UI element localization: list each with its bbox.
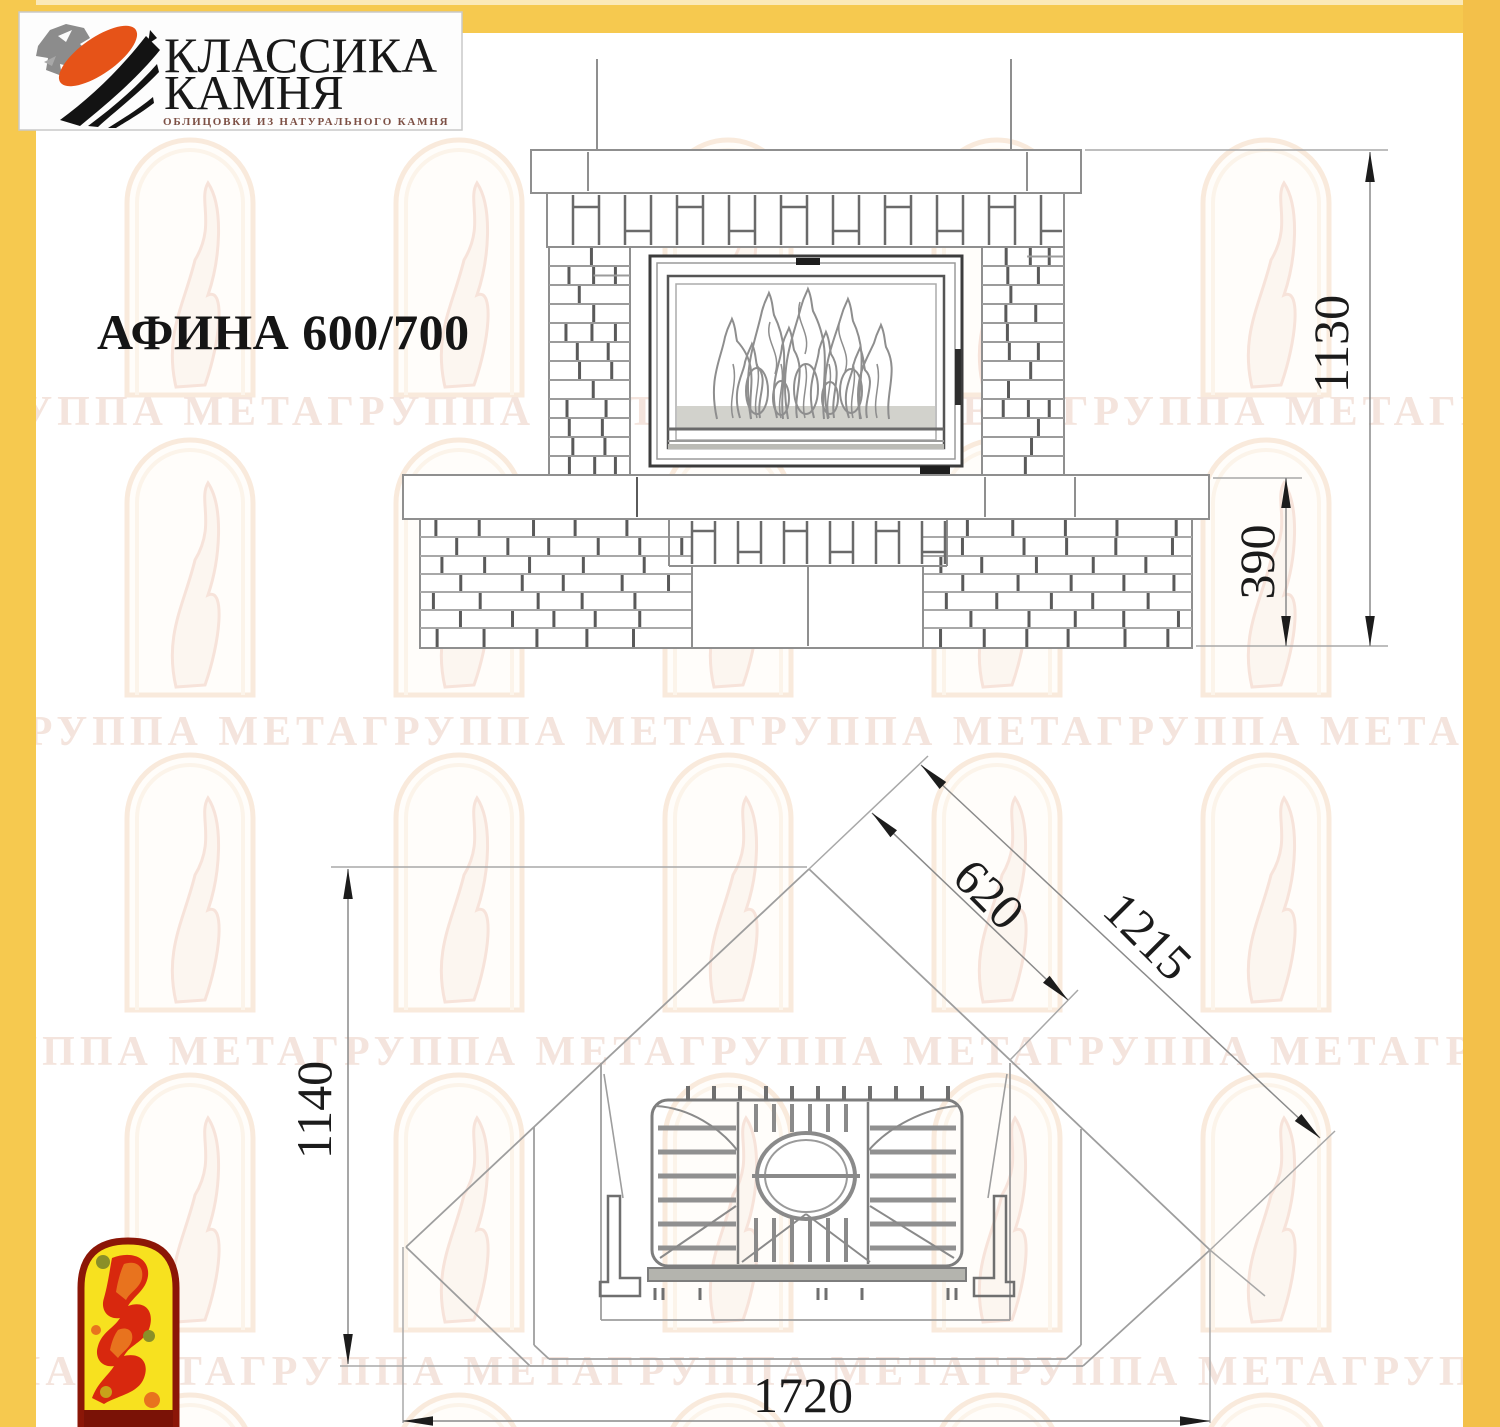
svg-text:КАМНЯ: КАМНЯ [164, 65, 344, 120]
svg-text:ГРУППА МЕТАГРУППА МЕТАГРУППА М: ГРУППА МЕТАГРУППА МЕТАГРУППА МЕТАГРУППА … [0, 709, 1500, 755]
svg-text:390: 390 [1229, 525, 1285, 600]
svg-text:1130: 1130 [1303, 295, 1359, 393]
svg-text:1720: 1720 [753, 1367, 853, 1423]
svg-text:ГРУППА МЕТАГРУППА МЕТАГРУППА М: ГРУППА МЕТАГРУППА МЕТАГРУППА МЕТАГРУППА … [0, 1029, 1500, 1075]
svg-text:1140: 1140 [286, 1061, 342, 1159]
svg-text:ОБЛИЦОВКИ ИЗ НАТУРАЛЬНОГО КАМН: ОБЛИЦОВКИ ИЗ НАТУРАЛЬНОГО КАМНЯ [163, 116, 449, 128]
svg-text:ППА МЕТАГРУППА МЕТАГРУППА МЕТА: ППА МЕТАГРУППА МЕТАГРУППА МЕТАГРУППА МЕТ… [0, 1349, 1500, 1395]
svg-text:АФИНА 600/700: АФИНА 600/700 [97, 304, 470, 360]
